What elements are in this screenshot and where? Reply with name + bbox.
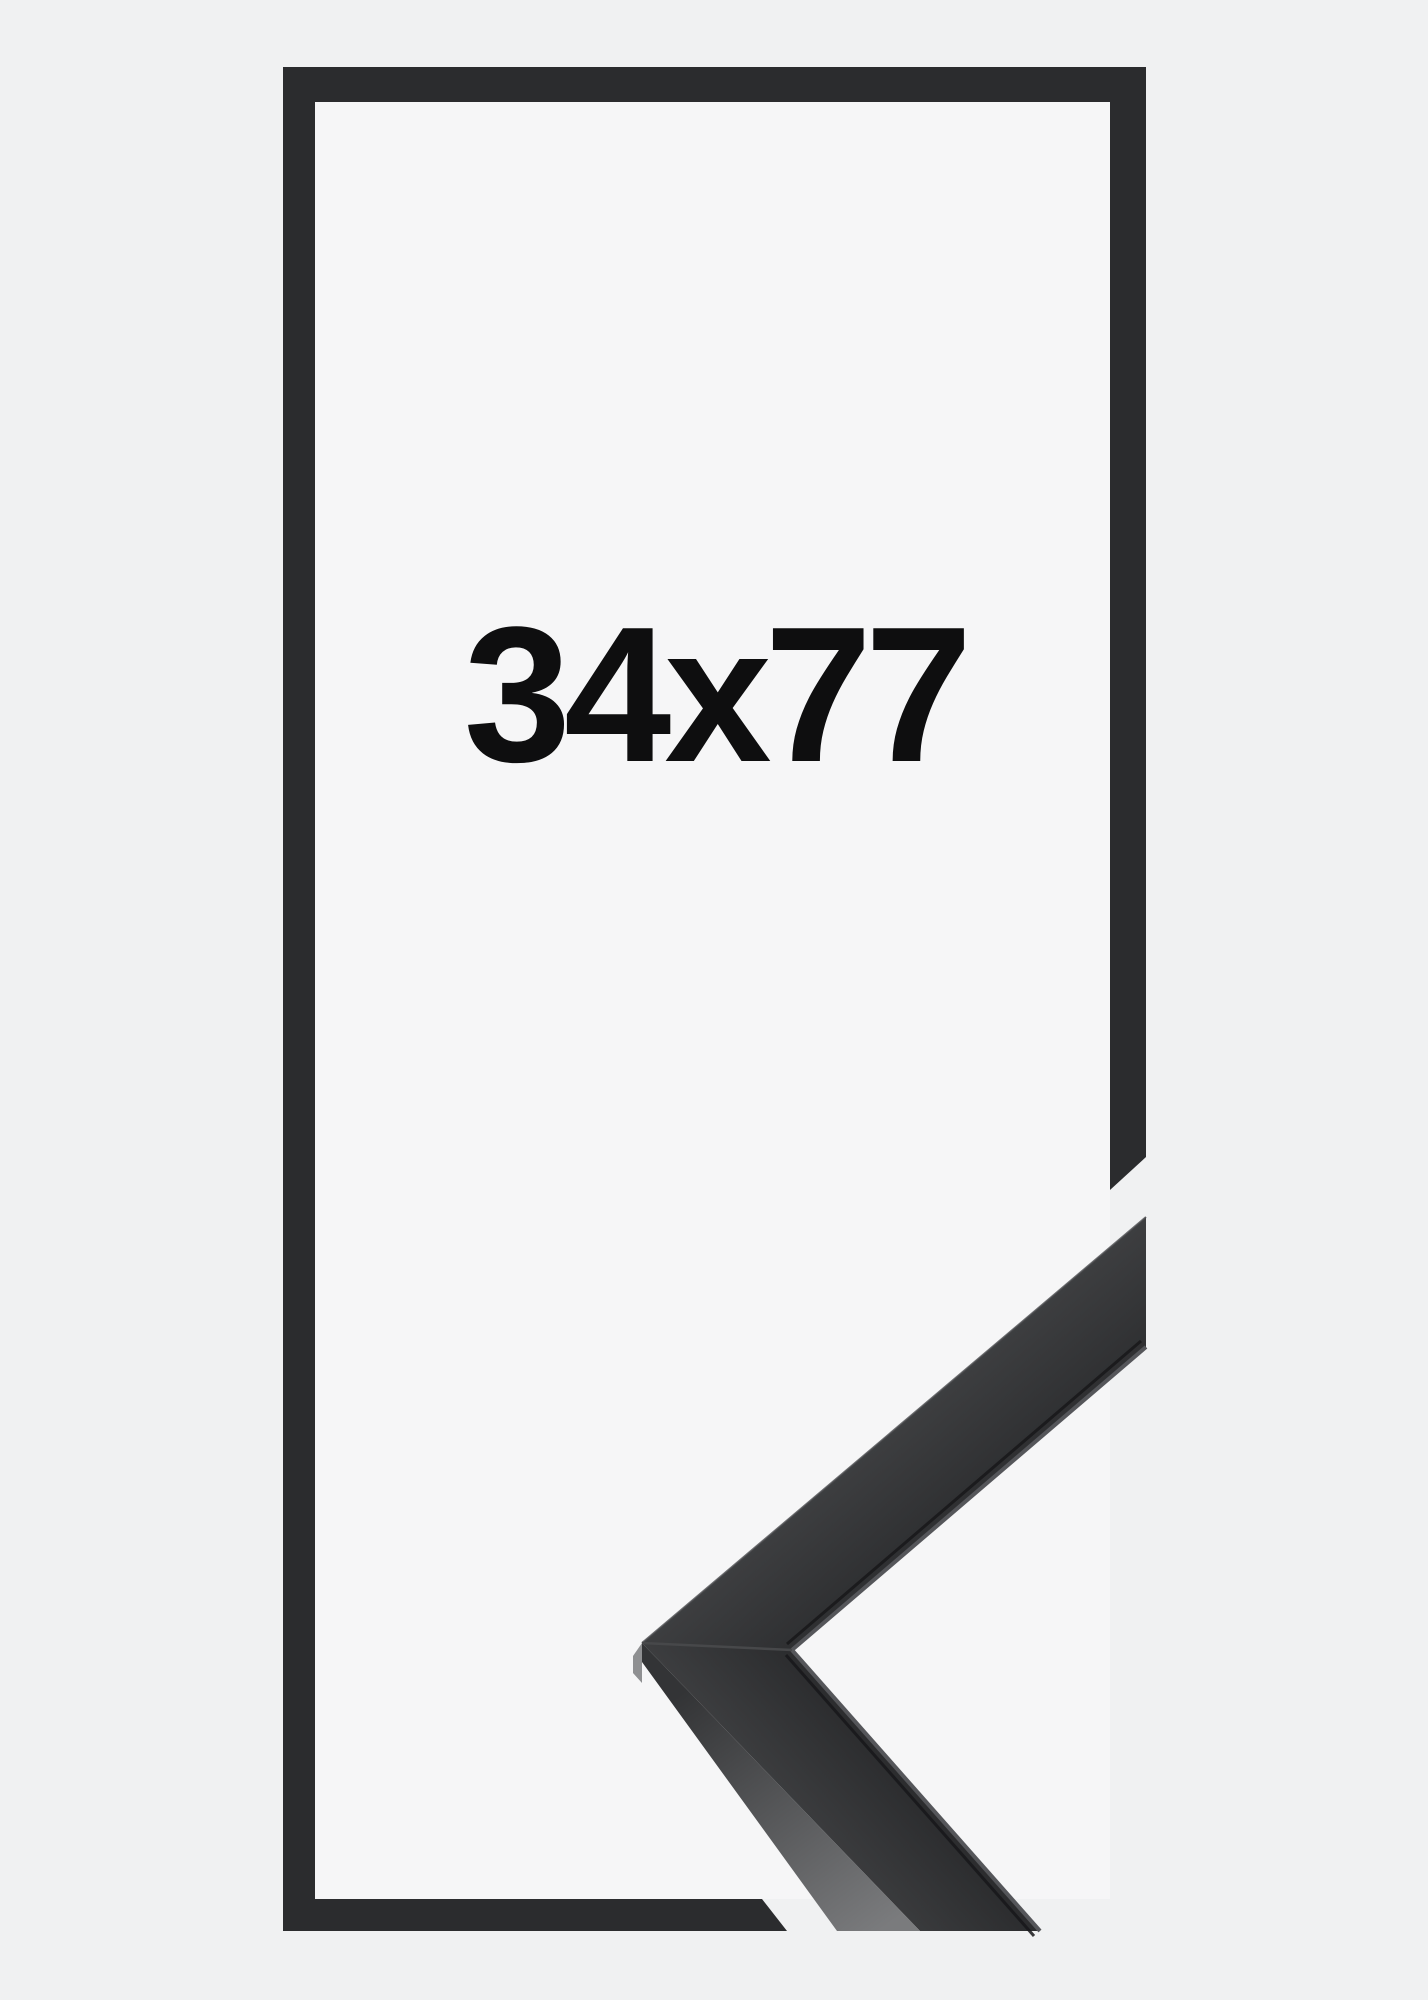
frame-size-label: 34x77 bbox=[283, 594, 1146, 794]
frame-product-image: 34x77 bbox=[0, 0, 1428, 2000]
frame-mockup-graphic bbox=[0, 0, 1428, 2000]
frame-bottom-bar bbox=[283, 1899, 787, 1931]
frame-left-bar bbox=[283, 102, 315, 1931]
frame-top-bar bbox=[283, 67, 1146, 102]
